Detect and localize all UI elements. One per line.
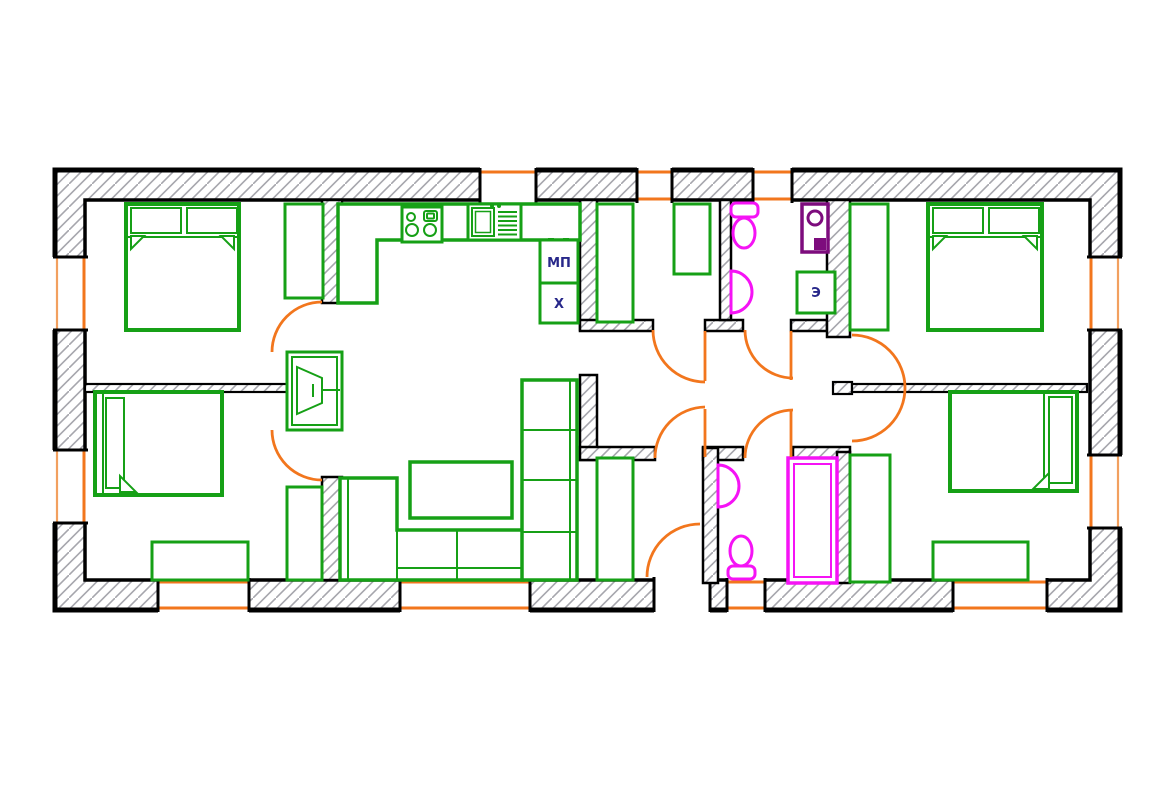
desk-1 — [152, 542, 248, 580]
wall-hall-top-b — [705, 320, 743, 331]
toilet-2 — [728, 536, 755, 579]
hall-cabinet — [597, 458, 633, 580]
electric-box: Э — [797, 272, 835, 313]
dishwasher-box: МП — [540, 239, 578, 283]
wall-bathroom2-left — [703, 448, 718, 583]
door-bathroom-top — [745, 330, 793, 380]
entrance-opening — [654, 576, 710, 614]
faucet — [497, 204, 501, 208]
washbasin-1 — [731, 271, 752, 313]
door-vestibule — [653, 330, 705, 382]
door-bedroom-top-right — [852, 335, 905, 388]
window-bottom-4 — [952, 577, 1048, 613]
wall-bathroom2-right — [837, 452, 850, 583]
window-bottom-bathroom — [726, 577, 766, 613]
faucet — [490, 204, 494, 208]
window-bottom-2 — [399, 577, 531, 613]
wardrobe-2 — [287, 487, 322, 580]
bookshelf — [522, 380, 577, 580]
dishwasher-label: МП — [547, 256, 571, 271]
pillow — [1049, 397, 1072, 483]
wall-cap-right-divider — [833, 382, 852, 394]
coffee-table — [410, 462, 512, 518]
desk-2 — [933, 542, 1028, 580]
wardrobe-3 — [850, 204, 888, 330]
door-bedroom-bottom-right — [852, 388, 905, 441]
kitchen-sink — [468, 204, 521, 240]
window-bathroom-top — [752, 167, 793, 203]
window-left-lower — [52, 449, 88, 524]
pillow — [187, 208, 237, 233]
window-kitchen-top — [479, 167, 537, 203]
bathroom-bottom — [718, 458, 837, 583]
wardrobe-4 — [850, 455, 890, 582]
window-right-lower — [1087, 454, 1123, 529]
electric-label: Э — [811, 286, 821, 301]
window-right-upper — [1087, 256, 1123, 331]
wall-bathroom1-right — [827, 200, 850, 337]
shelf-cabinet — [674, 204, 710, 274]
door-main-entrance — [647, 524, 700, 577]
washbasin-2 — [718, 465, 739, 507]
wall-kitchen-right — [580, 200, 597, 330]
tv-unit — [287, 352, 342, 430]
water-heater — [802, 204, 828, 252]
living-room — [340, 380, 577, 580]
bedroom-bottom-right — [850, 392, 1077, 582]
pillow — [106, 398, 124, 488]
bathroom-top: Э — [731, 203, 835, 313]
floor-plan-drawing: МП Х — [0, 0, 1172, 785]
pillow — [933, 208, 983, 233]
fridge-label: Х — [554, 297, 564, 312]
stove — [402, 207, 442, 242]
tall-wardrobe — [597, 204, 633, 322]
toilet-1 — [731, 203, 758, 248]
pillow — [989, 208, 1039, 233]
floor-plan-canvas: МП Х — [0, 0, 1172, 785]
door-bedroom-top-left — [272, 302, 322, 352]
wall-hall-top-c — [791, 320, 827, 331]
wardrobe-1 — [285, 204, 323, 298]
bathtub — [788, 458, 837, 583]
window-vestibule-top — [636, 167, 673, 203]
fridge-box: Х — [540, 283, 578, 323]
bedroom-top-right — [850, 204, 1042, 330]
pillow — [131, 208, 181, 233]
door-bedroom-bottom-left — [272, 430, 322, 480]
kitchen: МП Х — [338, 204, 580, 323]
door-bathroom-bottom — [745, 410, 793, 458]
wall-bathroom1-left — [720, 200, 731, 320]
door-entry-corridor — [655, 407, 705, 458]
window-bottom-1 — [157, 577, 250, 613]
window-left-upper — [52, 256, 88, 331]
